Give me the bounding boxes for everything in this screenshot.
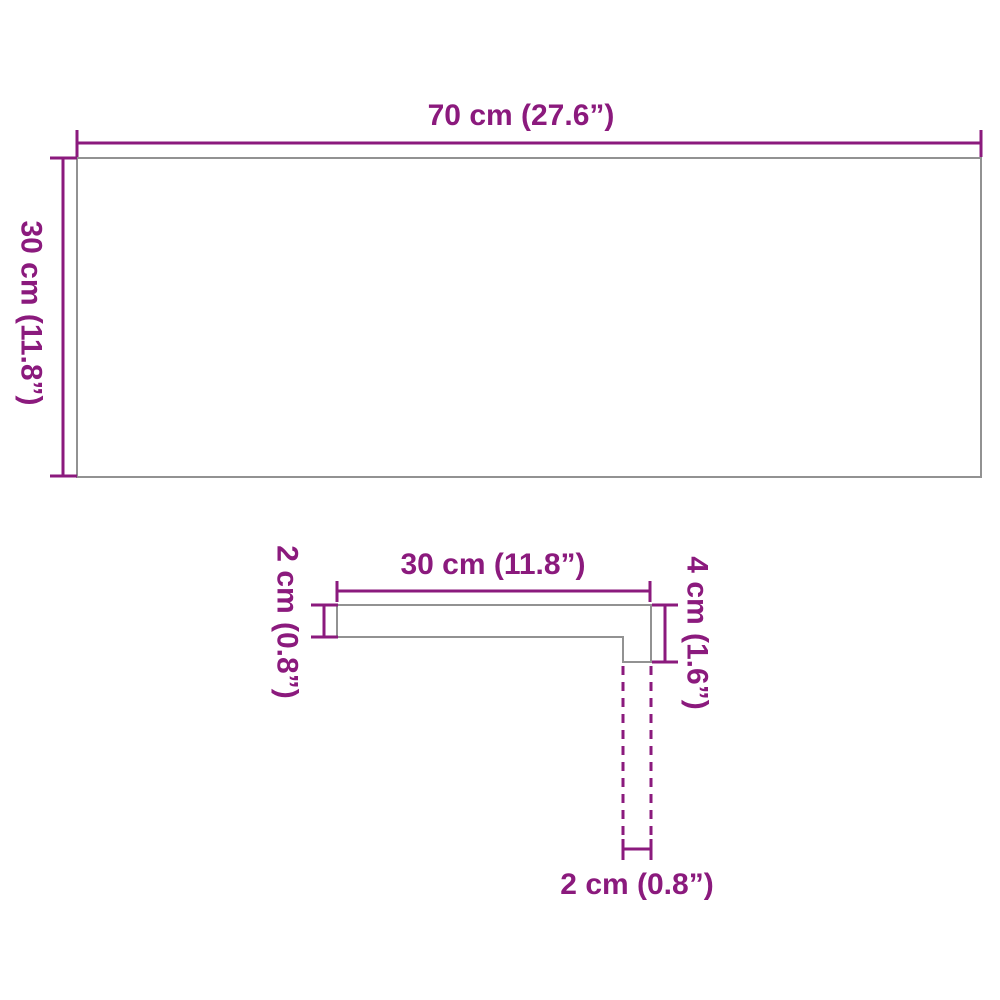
panel-thickness-dimension: 2 cm (0.8”) [271, 545, 339, 698]
nosing-height-dimension: 4 cm (1.6”) [652, 556, 714, 709]
riser-thickness-dimension: 2 cm (0.8”) [560, 839, 713, 901]
diagram-svg: 70 cm (27.6”) 30 cm (11.8”) 30 cm (11.8”… [0, 0, 1000, 1000]
depth-dimension: 30 cm (11.8”) [15, 158, 78, 476]
profile-outline [337, 605, 651, 662]
riser-thickness-dimension-label: 2 cm (0.8”) [560, 868, 713, 901]
dimension-diagram: 70 cm (27.6”) 30 cm (11.8”) 30 cm (11.8”… [0, 0, 1000, 1000]
tread-depth-dimension-label: 30 cm (11.8”) [400, 548, 585, 581]
nosing-height-dimension-label: 4 cm (1.6”) [681, 556, 714, 709]
panel-thickness-dimension-label: 2 cm (0.8”) [271, 545, 304, 698]
top-view: 70 cm (27.6”) 30 cm (11.8”) [15, 99, 982, 477]
width-dimension: 70 cm (27.6”) [77, 99, 981, 157]
panel-outline [77, 158, 981, 477]
width-dimension-label: 70 cm (27.6”) [428, 99, 615, 132]
tread-depth-dimension: 30 cm (11.8”) [337, 548, 650, 602]
depth-dimension-label: 30 cm (11.8”) [15, 220, 48, 405]
profile-view: 30 cm (11.8”) 2 cm (0.8”) 4 cm (1.6”) [271, 545, 714, 901]
